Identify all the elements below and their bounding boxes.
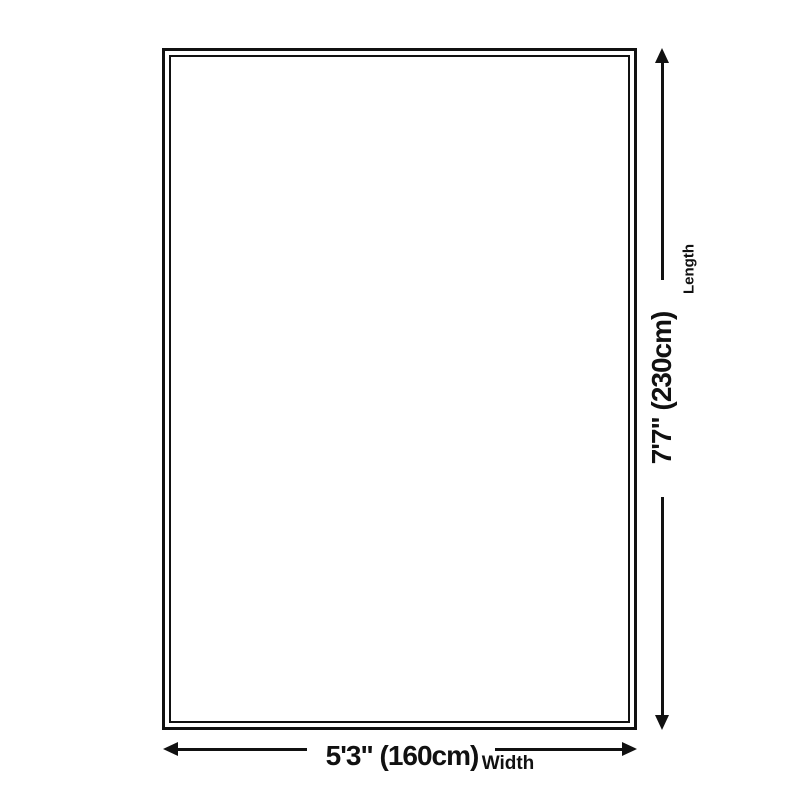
length-value: 7'7" (230cm) — [646, 312, 678, 465]
width-arrow-line-right — [495, 748, 623, 751]
width-arrow-line-left — [177, 748, 307, 751]
arrow-left-icon — [163, 742, 178, 756]
dimension-diagram: 7'7" (230cm) Length 5'3" (160cm) Width — [0, 0, 800, 800]
arrow-right-icon — [622, 742, 637, 756]
rug-outline — [162, 48, 637, 730]
rug-inner-border — [169, 55, 630, 723]
length-label: Length — [681, 244, 698, 294]
width-label: Width — [482, 753, 535, 775]
arrow-down-icon — [655, 715, 669, 730]
width-value: 5'3" (160cm) — [326, 740, 479, 772]
length-arrow-line-bottom — [661, 497, 664, 717]
length-arrow-line-top — [661, 61, 664, 280]
